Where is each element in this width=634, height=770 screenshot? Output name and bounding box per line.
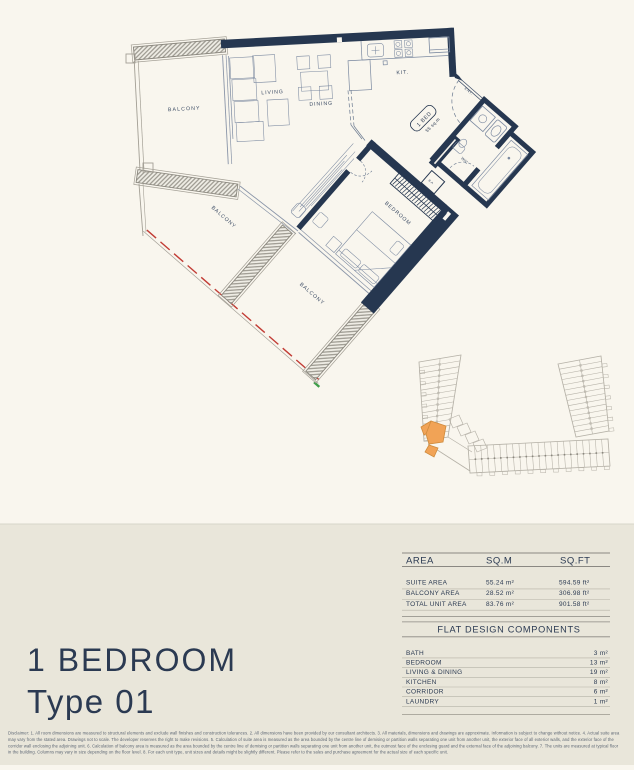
svg-text:1 m²: 1 m² (594, 698, 609, 705)
svg-text:Type 01: Type 01 (27, 683, 155, 720)
svg-text:8 m²: 8 m² (594, 679, 609, 686)
svg-text:BALCONY AREA: BALCONY AREA (406, 590, 460, 597)
svg-text:LAUNDRY: LAUNDRY (406, 698, 439, 705)
svg-text:BATH: BATH (406, 650, 424, 657)
svg-text:1 BEDROOM: 1 BEDROOM (27, 642, 237, 678)
svg-text:AREA: AREA (406, 556, 434, 567)
svg-text:SUITE AREA: SUITE AREA (406, 580, 448, 587)
svg-text:6 m²: 6 m² (594, 689, 609, 696)
svg-text:306.98 ft²: 306.98 ft² (559, 590, 590, 597)
svg-text:13 m²: 13 m² (590, 660, 609, 667)
svg-text:SQ.FT: SQ.FT (560, 556, 590, 567)
svg-text:LIVING: LIVING (261, 89, 284, 96)
svg-text:FLAT DESIGN COMPONENTS: FLAT DESIGN COMPONENTS (437, 625, 580, 635)
svg-text:DINING: DINING (309, 101, 333, 108)
svg-text:BEDROOM: BEDROOM (406, 660, 442, 667)
svg-text:Disclaimer: 1. All room dimens: Disclaimer: 1. All room dimensions are m… (8, 731, 620, 736)
svg-text:TOTAL UNIT AREA: TOTAL UNIT AREA (406, 601, 467, 608)
svg-text:may vary from the stated area.: may vary from the stated area. Drawings … (8, 737, 614, 742)
svg-text:83.76 m²: 83.76 m² (486, 601, 515, 608)
svg-text:55.24 m²: 55.24 m² (486, 580, 515, 587)
svg-text:corridor wall enclosing the ad: corridor wall enclosing the adjoining un… (8, 743, 619, 748)
svg-text:KITCHEN: KITCHEN (406, 679, 437, 686)
svg-text:901.58 ft²: 901.58 ft² (559, 601, 590, 608)
svg-text:SQ.M: SQ.M (486, 556, 512, 567)
svg-text:594.59 ft²: 594.59 ft² (559, 580, 590, 587)
svg-text:in the building. Columns may v: in the building. Columns may vary in siz… (8, 750, 448, 755)
svg-text:19 m²: 19 m² (590, 669, 609, 676)
svg-text:28.52 m²: 28.52 m² (486, 590, 515, 597)
svg-text:3 m²: 3 m² (594, 650, 609, 657)
svg-text:CORRIDOR: CORRIDOR (406, 689, 444, 696)
svg-text:KIT.: KIT. (396, 70, 409, 77)
svg-text:LIVING & DINING: LIVING & DINING (406, 669, 463, 676)
